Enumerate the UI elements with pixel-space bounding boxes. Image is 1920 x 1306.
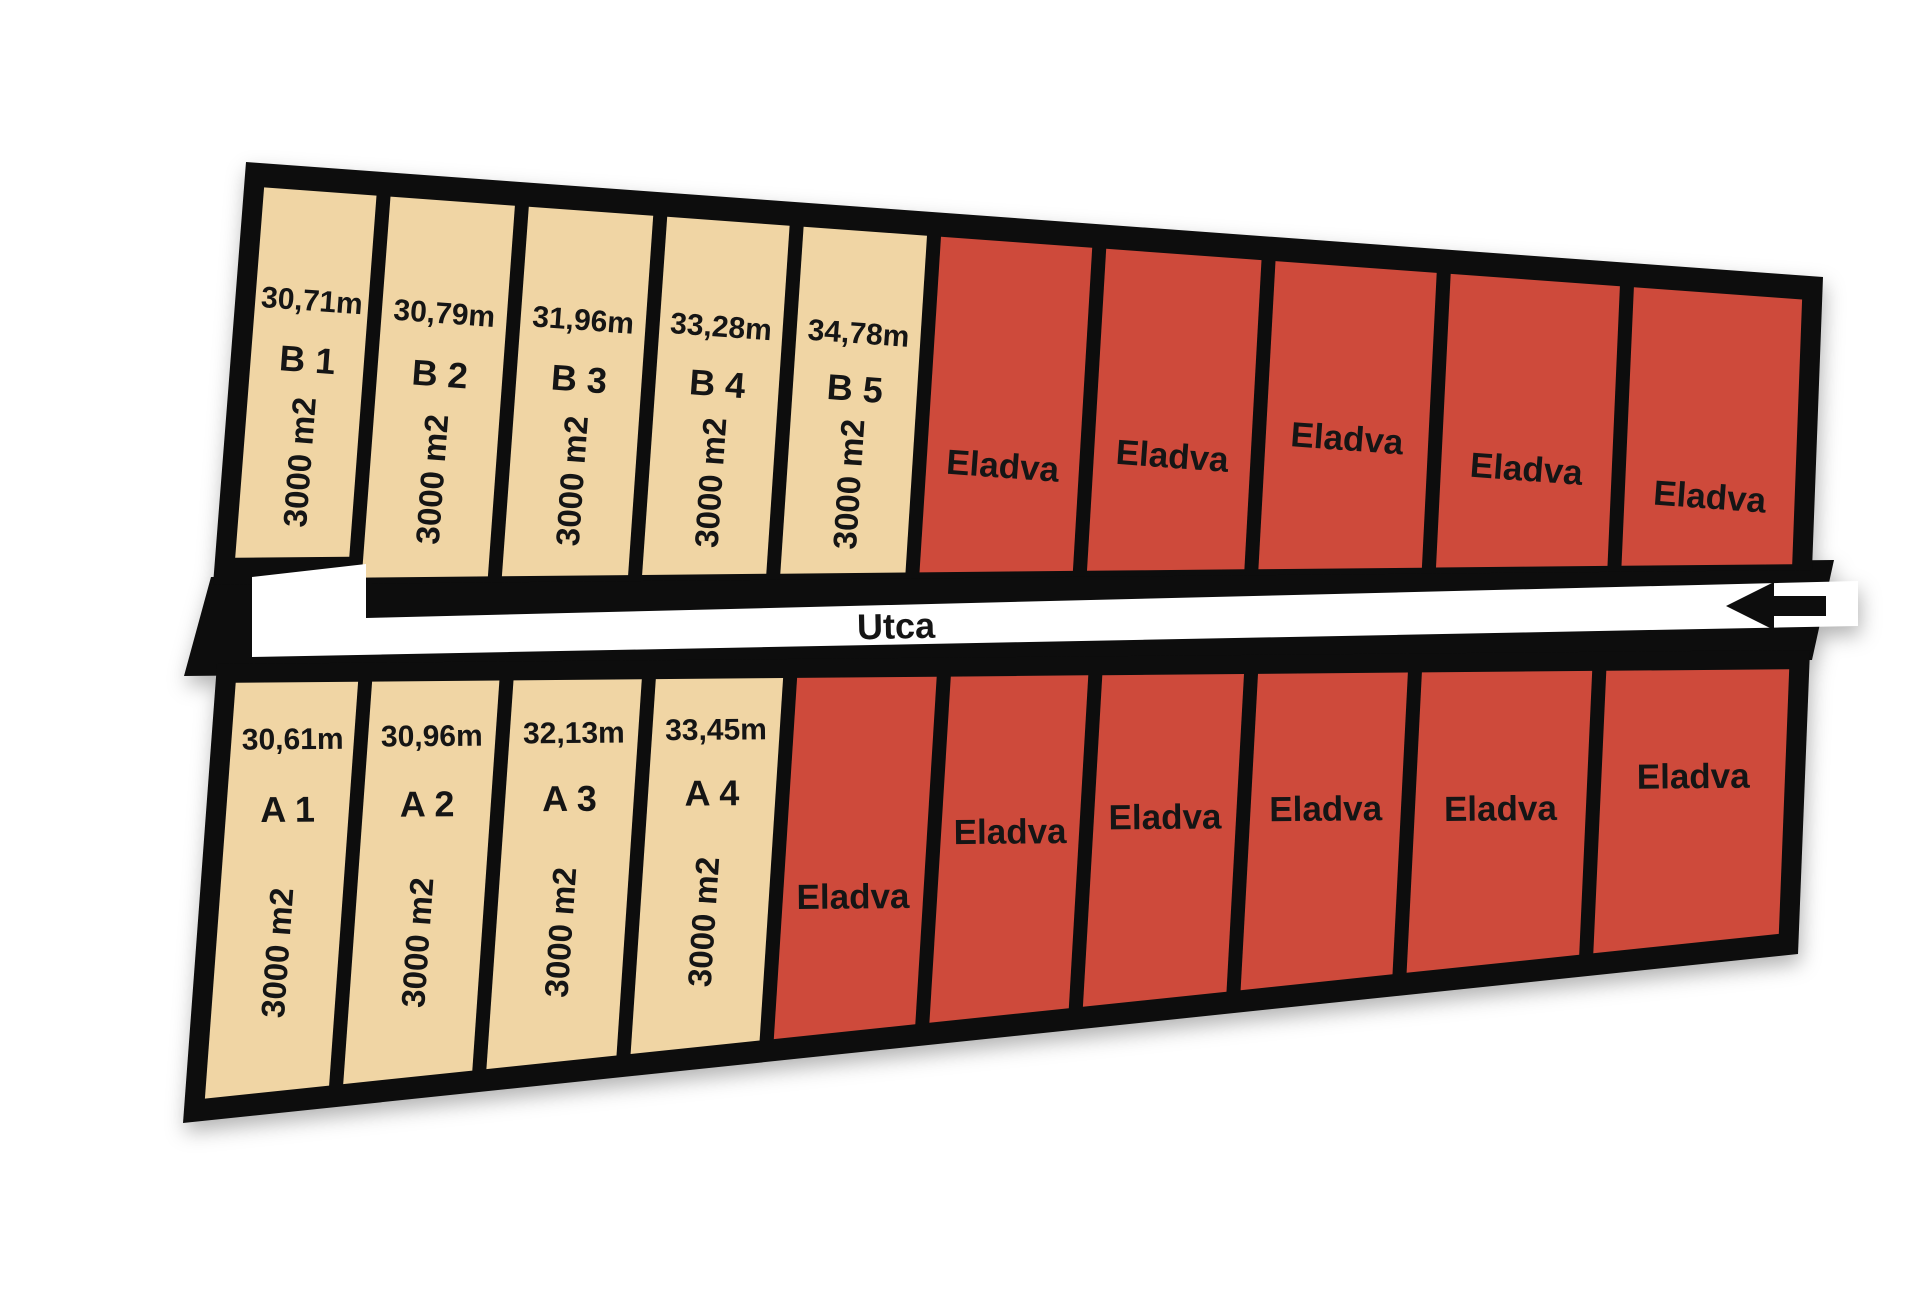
plot-b-sold-5 (1622, 287, 1803, 566)
plot-sold-label: Eladva (945, 443, 1061, 490)
plot-sold-label: Eladva (1269, 789, 1383, 829)
plot-sold-label: Eladva (1444, 789, 1558, 829)
plot-width-label: 32,13m (523, 716, 625, 750)
plot-sold-label: Eladva (1108, 797, 1222, 837)
plot-name-label: B 1 (278, 337, 337, 382)
parcel-map: 30,71mB 13000 m230,79mB 23000 m231,96mB … (0, 0, 1920, 1306)
plot-sold-label: Eladva (1637, 757, 1751, 797)
plot-name-label: B 2 (410, 352, 469, 397)
plot-sold-label: Eladva (954, 812, 1068, 852)
plot-b-sold-1 (920, 237, 1093, 573)
plot-sold-label: Eladva (1652, 474, 1768, 521)
street-name-label: Utca (857, 605, 937, 648)
plot-width-label: 30,61m (242, 723, 344, 757)
plot-b-sold-3 (1258, 261, 1436, 569)
plot-sold-label: Eladva (796, 877, 910, 917)
plot-a-sold-3 (1083, 674, 1244, 1007)
plot-a-sold-4 (1241, 673, 1408, 991)
plot-a-sold-6 (1593, 669, 1789, 953)
plot-name-label: A 2 (400, 783, 455, 824)
plot-sold-label: Eladva (1469, 446, 1585, 493)
plot-name-label: B 5 (826, 366, 885, 411)
plot-sold-label: Eladva (1115, 433, 1231, 480)
plot-name-label: B 4 (688, 361, 747, 406)
plot-width-label: 30,96m (381, 720, 483, 754)
plot-b-sold-2 (1087, 249, 1262, 571)
plot-name-label: A 1 (260, 789, 315, 830)
plot-a-sold-1 (774, 677, 937, 1039)
plot-name-label: B 3 (550, 356, 609, 401)
plot-name-label: A 3 (542, 778, 597, 819)
plot-name-label: A 4 (684, 772, 739, 813)
plot-b-sold-4 (1436, 274, 1620, 568)
plot-sold-label: Eladva (1289, 415, 1405, 462)
plot-width-label: 33,45m (665, 713, 767, 747)
